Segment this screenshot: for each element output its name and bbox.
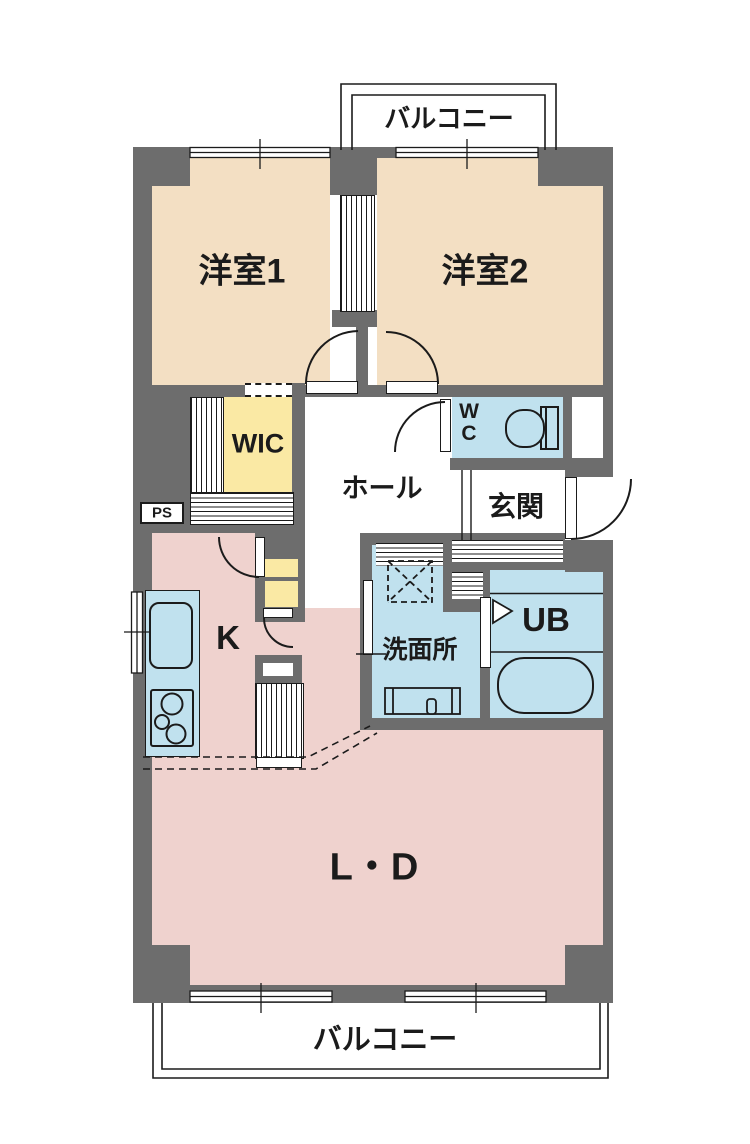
unit-bath-label: UB bbox=[522, 601, 570, 639]
western-room-2-label: 洋室2 bbox=[442, 244, 529, 293]
washroom-label: 洗面所 bbox=[382, 630, 457, 666]
ps-label: PS bbox=[152, 505, 172, 522]
washing-machine-icon bbox=[388, 561, 432, 602]
gas-stove-icon bbox=[151, 690, 193, 746]
hall-label: ホール bbox=[342, 467, 423, 506]
ld-boundary-dashed bbox=[143, 726, 377, 769]
vanity-icon bbox=[385, 688, 460, 714]
plan-linework bbox=[0, 0, 750, 1144]
folding-door-icon bbox=[493, 600, 512, 623]
western-room-1-label: 洋室1 bbox=[199, 244, 286, 293]
balcony-bottom-label: バルコニー bbox=[313, 1016, 457, 1058]
genkan-opening-frame bbox=[462, 470, 471, 540]
wc-label-w: W bbox=[459, 400, 479, 424]
door-swing-icon bbox=[219, 331, 631, 647]
wc-label-c: C bbox=[461, 422, 476, 446]
living-dining-label: L・D bbox=[330, 836, 419, 891]
toilet-icon bbox=[506, 407, 558, 449]
wic-label: WIC bbox=[232, 429, 284, 460]
genkan-label: 玄関 bbox=[488, 485, 544, 525]
floor-plan: バルコニー 洋室1 洋室2 WIC ホール W C 玄関 PS K 洗面所 UB… bbox=[0, 0, 750, 1144]
balcony-top-label: バルコニー bbox=[384, 99, 513, 136]
kitchen-sink-icon bbox=[150, 603, 192, 668]
kitchen-label: K bbox=[216, 619, 240, 657]
